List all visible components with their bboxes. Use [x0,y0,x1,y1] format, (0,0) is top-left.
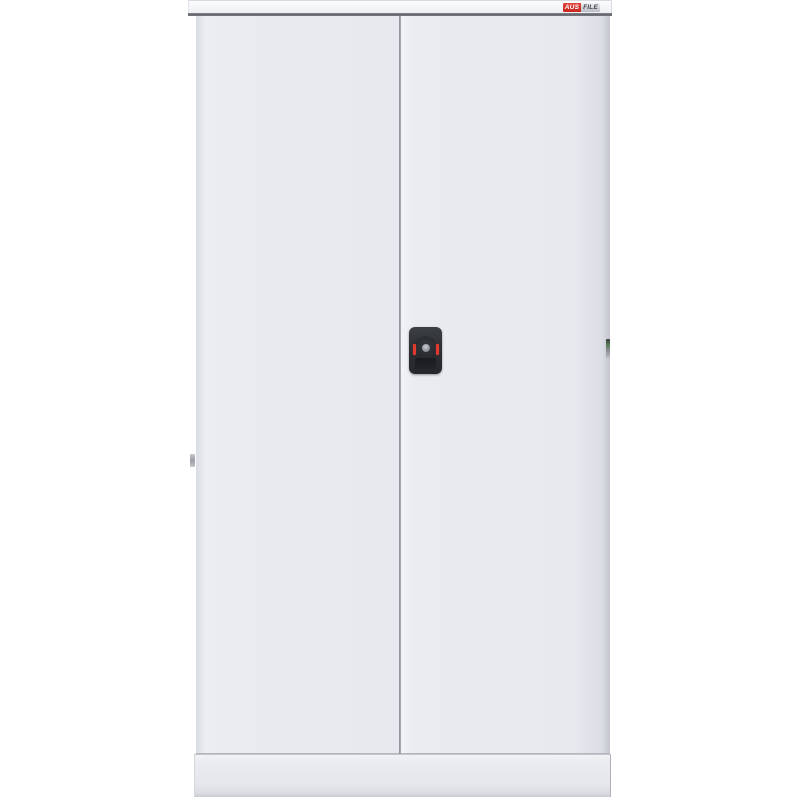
ausfile-logo: AUS FILE [563,3,600,12]
cabinet-top-cap: AUS FILE [188,0,612,13]
cabinet-doors [196,16,610,754]
right-door [401,16,610,754]
lock-knob [422,344,430,352]
keyhole-plate [415,358,436,369]
base-plinth [194,754,611,797]
lock-red-tick-left [413,344,416,355]
lock-red-tick-right [436,344,439,355]
left-hinge-mark [190,454,195,467]
left-door [196,16,399,754]
logo-file-text: FILE [581,3,600,12]
right-edge-mark [606,339,610,358]
logo-aus-text: AUS [563,3,581,12]
lock-dial [413,335,438,360]
cam-lock [409,327,442,374]
product-image-background: AUS FILE [0,0,800,800]
